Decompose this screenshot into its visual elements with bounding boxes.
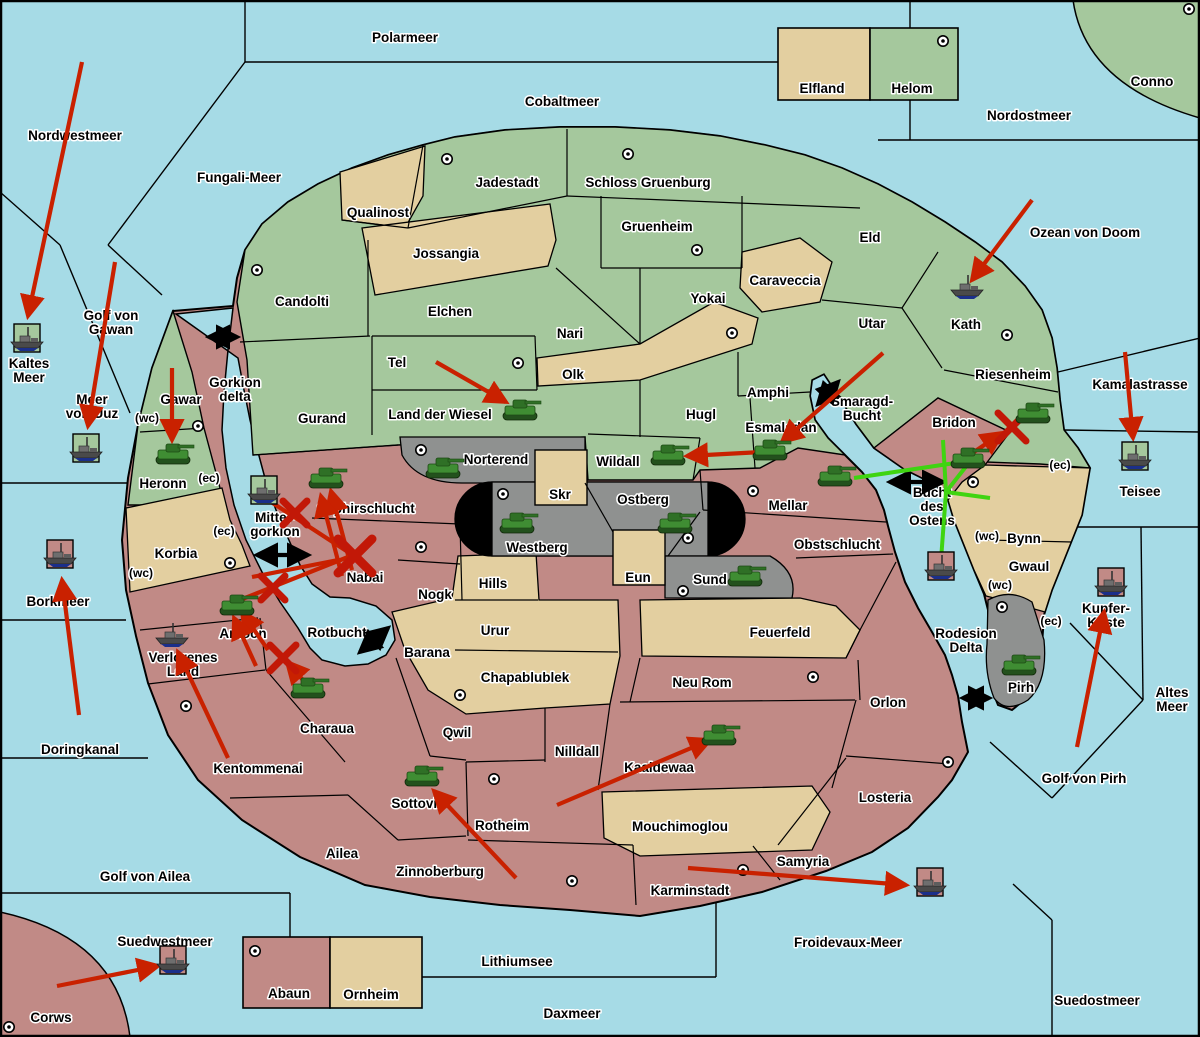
ship-gun	[31, 338, 38, 342]
ship-superstructure	[257, 488, 267, 494]
territory-label-rotheim: Rotheim	[475, 818, 529, 833]
territory-label-ostberg: Ostberg	[617, 492, 669, 507]
sc-dot	[686, 536, 690, 540]
tank-barrel	[673, 446, 689, 449]
sea-label-kupfer-k-ste: Kupfer-Küste	[1082, 601, 1130, 630]
supply-center-icon	[748, 486, 758, 496]
ship-superstructure	[934, 564, 944, 570]
territory-label-samyria: Samyria	[777, 854, 830, 869]
territory-label-gruenheim: Gruenheim	[621, 219, 692, 234]
fleet-unit-bucht-des-ostens	[925, 552, 957, 580]
coast-marker-ec: (ec)	[198, 471, 219, 485]
ship-superstructure	[1104, 580, 1114, 586]
sea-label-golf-von-ailea: Golf von Ailea	[100, 869, 191, 884]
sc-dot	[458, 693, 462, 697]
sc-dot	[811, 675, 815, 679]
ship-superstructure	[53, 552, 63, 558]
territory-label-qwil: Qwil	[443, 725, 472, 740]
territory-label-utar: Utar	[858, 316, 886, 331]
territory-label-riesenheim: Riesenheim	[975, 367, 1051, 382]
territory-label-jadestadt: Jadestadt	[475, 175, 539, 190]
tank-barrel	[178, 445, 194, 448]
ship-gun	[971, 286, 978, 290]
territory-label-nilldall: Nilldall	[555, 744, 599, 759]
sc-dot	[7, 1025, 11, 1029]
territory-label-zinnoberburg: Zinnoberburg	[396, 864, 484, 879]
territory-label-caraveccia: Caraveccia	[749, 273, 821, 288]
supply-center-icon	[943, 757, 953, 767]
sc-dot	[253, 949, 257, 953]
fleet-unit-froidevaux-meer	[914, 868, 946, 896]
supply-center-icon	[808, 672, 818, 682]
supply-center-icon	[1184, 4, 1194, 14]
fleet-unit-kupfer-k-ste	[1095, 568, 1127, 596]
sc-dot	[516, 361, 520, 365]
fleet-unit-meer-von-uuz	[70, 434, 102, 462]
territory-label-wildall: Wildall	[596, 454, 639, 469]
sc-dot	[419, 448, 423, 452]
coast-marker-ec: (ec)	[1040, 614, 1061, 628]
supply-center-icon	[489, 774, 499, 784]
sea-label-doringkanal: Doringkanal	[41, 742, 119, 757]
coast-marker-ec: (ec)	[1049, 458, 1070, 472]
ship-hull	[11, 342, 43, 348]
ship-hull	[914, 886, 946, 892]
territory-label-corws: Corws	[30, 1010, 71, 1025]
territory-label-hills: Hills	[479, 576, 508, 591]
territory-label-pirh: Pirh	[1008, 680, 1034, 695]
sc-dot	[196, 424, 200, 428]
supply-center-icon	[4, 1022, 14, 1032]
territory-label-jossangia: Jossangia	[413, 246, 480, 261]
territory-label-ornheim: Ornheim	[343, 987, 399, 1002]
territory-label-westberg: Westberg	[506, 540, 567, 555]
ship-hull	[156, 638, 188, 644]
ship-gun	[177, 960, 184, 964]
ship-hull	[157, 964, 189, 970]
sc-dot	[255, 268, 259, 272]
ship-superstructure	[165, 632, 175, 638]
fleet-unit-kaltes-meer	[11, 324, 43, 352]
sc-dot	[445, 157, 449, 161]
territory-label-land-der-wiesel: Land der Wiesel	[388, 407, 491, 422]
ship-hull	[44, 558, 76, 564]
supply-center-icon	[193, 421, 203, 431]
supply-center-icon	[727, 328, 737, 338]
supply-center-icon	[513, 358, 523, 368]
ship-gun	[90, 448, 97, 452]
supply-center-icon	[252, 265, 262, 275]
sea-label-ozean-von-doom: Ozean von Doom	[1030, 225, 1140, 240]
sea-label-suedostmeer: Suedostmeer	[1054, 993, 1140, 1008]
fleet-unit-teisee	[1119, 442, 1151, 470]
territory-label-qualinost: Qualinost	[347, 205, 410, 220]
sc-dot	[1005, 333, 1009, 337]
sc-dot	[570, 879, 574, 883]
tank-barrel	[680, 514, 696, 517]
territory-label-urur: Urur	[481, 623, 510, 638]
sea-label-daxmeer: Daxmeer	[543, 1006, 601, 1021]
territory-label-gwaul: Gwaul	[1009, 559, 1050, 574]
territory-label-elchen: Elchen	[428, 304, 472, 319]
fleet-unit-mittelgorkion	[248, 476, 280, 504]
sc-dot	[501, 492, 505, 496]
territory-label-gurand: Gurand	[298, 411, 346, 426]
territory-label-hugl: Hugl	[686, 407, 716, 422]
territory-label-abaun: Abaun	[268, 986, 310, 1001]
territory-label-losteria: Losteria	[859, 790, 912, 805]
tank-barrel	[973, 449, 989, 452]
ship-gun	[934, 882, 941, 886]
ship-gun	[268, 490, 275, 494]
territory-label-amphi: Amphi	[747, 385, 789, 400]
sea-label-cobaltmeer: Cobaltmeer	[525, 94, 600, 109]
sc-dot	[946, 760, 950, 764]
territory-label-saphirschlucht: Saphirschlucht	[317, 501, 415, 516]
sea-label-golf-von-gawan: Golf vonGawan	[84, 308, 139, 337]
territory-label-candolti: Candolti	[275, 294, 329, 309]
territory-label-sottovia: Sottovia	[391, 796, 445, 811]
coast-marker-wc: (wc)	[135, 411, 159, 425]
territory-label-kentommenai: Kentommenai	[213, 761, 302, 776]
territory-label-eun: Eun	[625, 570, 651, 585]
sc-dot	[228, 561, 232, 565]
ship-superstructure	[20, 336, 30, 342]
ship-gun	[1139, 456, 1146, 460]
ship-gun	[945, 566, 952, 570]
sea-label-kamalastrasse: Kamalastrasse	[1092, 377, 1188, 392]
sc-dot	[751, 489, 755, 493]
territory-label-ailea: Ailea	[326, 846, 359, 861]
tank-barrel	[242, 596, 258, 599]
supply-center-icon	[997, 602, 1007, 612]
territory-label-eld: Eld	[859, 230, 880, 245]
territory-label-nari: Nari	[557, 326, 583, 341]
territory-label-mouchimoglou: Mouchimoglou	[632, 819, 728, 834]
territory-label-bynn: Bynn	[1007, 531, 1041, 546]
coast-marker-wc: (wc)	[975, 529, 999, 543]
ship-hull	[1119, 460, 1151, 466]
tank-barrel	[313, 679, 329, 682]
supply-center-icon	[225, 558, 235, 568]
territory-label-neu-rom: Neu Rom	[672, 675, 731, 690]
ship-superstructure	[1128, 454, 1138, 460]
sc-dot	[184, 704, 188, 708]
tank-barrel	[1024, 656, 1040, 659]
supply-center-icon	[250, 946, 260, 956]
sc-dot	[1000, 605, 1004, 609]
territory-label-elfland: Elfland	[799, 81, 844, 96]
fleet-unit-borkmeer	[44, 540, 76, 568]
territory-label-charaua: Charaua	[300, 721, 355, 736]
supply-center-icon	[181, 701, 191, 711]
territory-label-mellar: Mellar	[768, 498, 808, 513]
coast-marker-wc: (wc)	[988, 578, 1012, 592]
territory-label-obstschlucht: Obstschlucht	[794, 537, 881, 552]
ship-superstructure	[960, 284, 970, 290]
supply-center-icon	[498, 489, 508, 499]
territory-label-yokai: Yokai	[690, 291, 725, 306]
ship-hull	[1095, 586, 1127, 592]
supply-center-icon	[968, 477, 978, 487]
supply-center-icon	[416, 445, 426, 455]
fleet-unit-suedwestmeer	[157, 946, 189, 974]
sea-label-borkmeer: Borkmeer	[26, 594, 90, 609]
supply-center-icon	[455, 690, 465, 700]
territory-label-skr: Skr	[549, 487, 572, 502]
sea-label-teisee: Teisee	[1119, 484, 1161, 499]
sc-dot	[681, 589, 685, 593]
supply-center-icon	[567, 876, 577, 886]
sea-label-kaltes-meer: KaltesMeer	[9, 356, 50, 385]
sea-label-fungali-meer: Fungali-Meer	[197, 170, 282, 185]
sc-dot	[941, 39, 945, 43]
territory-label-bridon: Bridon	[932, 415, 976, 430]
ship-gun	[176, 634, 183, 638]
tank-barrel	[1038, 404, 1054, 407]
territory-label-chapablublek: Chapablublek	[481, 670, 570, 685]
sea-label-nordostmeer: Nordostmeer	[987, 108, 1072, 123]
territory-label-karminstadt: Karminstadt	[651, 883, 730, 898]
territory-label-heronn: Heronn	[139, 476, 186, 491]
ship-superstructure	[923, 880, 933, 886]
supply-center-icon	[623, 149, 633, 159]
game-map: PolarmeerCobaltmeerNordostmeerNordwestme…	[0, 0, 1200, 1037]
sea-label-altes-meer: AltesMeer	[1155, 685, 1188, 714]
tank-barrel	[750, 567, 766, 570]
sea-label-lithiumsee: Lithiumsee	[481, 954, 553, 969]
tank-barrel	[522, 514, 538, 517]
territory-label-tel: Tel	[388, 355, 407, 370]
sc-dot	[730, 331, 734, 335]
territory-label-conno: Conno	[1131, 74, 1174, 89]
tank-barrel	[448, 459, 464, 462]
sc-dot	[1187, 7, 1191, 11]
supply-center-icon	[938, 36, 948, 46]
ship-hull	[70, 452, 102, 458]
ship-hull	[248, 494, 280, 500]
territory-label-sund: Sund	[693, 572, 727, 587]
territory-label-gawar: Gawar	[160, 392, 202, 407]
ship-superstructure	[166, 958, 176, 964]
ship-superstructure	[79, 446, 89, 452]
sc-dot	[419, 545, 423, 549]
ship-hull	[951, 290, 983, 296]
supply-center-icon	[683, 533, 693, 543]
sc-dot	[695, 248, 699, 252]
supply-center-icon	[1002, 330, 1012, 340]
ship-gun	[64, 554, 71, 558]
ship-gun	[1115, 582, 1122, 586]
supply-center-icon	[692, 245, 702, 255]
sc-dot	[492, 777, 496, 781]
tank-barrel	[427, 767, 443, 770]
sea-label-polarmeer: Polarmeer	[372, 30, 439, 45]
supply-center-icon	[442, 154, 452, 164]
territory-label-schloss-gruenburg: Schloss Gruenburg	[585, 175, 710, 190]
supply-center-icon	[678, 586, 688, 596]
territory-label-korbia: Korbia	[155, 546, 198, 561]
sea-label-nordwestmeer: Nordwestmeer	[28, 128, 123, 143]
territory-label-orlon: Orlon	[870, 695, 906, 710]
supply-center-icon	[416, 542, 426, 552]
coast-marker-wc: (wc)	[129, 566, 153, 580]
tank-barrel	[724, 726, 740, 729]
tank-barrel	[840, 467, 856, 470]
tank-barrel	[331, 469, 347, 472]
sea-label-rotbucht: Rotbucht	[307, 625, 367, 640]
map-canvas: PolarmeerCobaltmeerNordostmeerNordwestme…	[0, 0, 1200, 1037]
sea-label-golf-von-pirh: Golf von Pirh	[1042, 771, 1127, 786]
territory-label-kath: Kath	[951, 317, 981, 332]
ship-hull	[925, 570, 957, 576]
sc-dot	[626, 152, 630, 156]
sea-label-froidevaux-meer: Froidevaux-Meer	[794, 935, 903, 950]
tank-barrel	[775, 441, 791, 444]
territory-label-helom: Helom	[891, 81, 932, 96]
territory-label-olk: Olk	[562, 367, 584, 382]
territory-label-feuerfeld: Feuerfeld	[750, 625, 811, 640]
territory-label-nogk: Nogk	[418, 587, 452, 602]
coast-marker-ec: (ec)	[213, 524, 234, 538]
tank-barrel	[525, 401, 541, 404]
territory-label-barana: Barana	[404, 645, 450, 660]
territory-label-norterend: Norterend	[464, 452, 529, 467]
sc-dot	[971, 480, 975, 484]
